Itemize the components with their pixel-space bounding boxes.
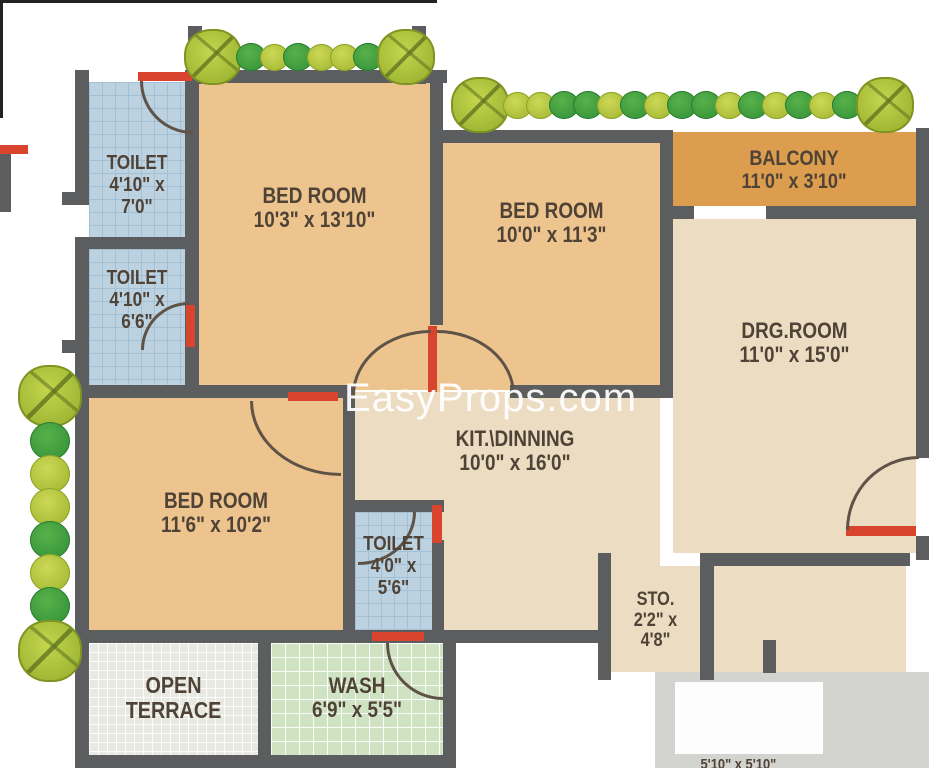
drg-room-label: DRG.ROOM 11'0" x 15'0" xyxy=(690,310,899,376)
bedroom-top-label: BED ROOM 10'3" x 13'10" xyxy=(215,175,414,241)
wall xyxy=(700,553,714,680)
wall xyxy=(660,130,673,392)
room-size: 10'3" x 13'10" xyxy=(254,208,376,232)
room-size: 5'6" xyxy=(378,577,409,599)
open-terrace-label: OPEN TERRACE xyxy=(101,665,246,731)
wall xyxy=(714,553,910,566)
wall xyxy=(343,500,444,512)
wall xyxy=(432,540,444,632)
room-size: 6'9" x 5'5" xyxy=(312,698,402,722)
tree-row-top-right xyxy=(441,74,929,136)
room-size: 4'0" x xyxy=(371,555,417,577)
kit-dinning-label: KIT.\DINNING 10'0" x 16'0" xyxy=(390,418,639,484)
wall xyxy=(258,630,271,768)
room-name: KIT.\DINNING xyxy=(456,427,575,451)
door-marker xyxy=(432,505,442,543)
sto-label: STO. 2'2" x 4'8" xyxy=(617,575,694,667)
tree-row-top-left xyxy=(196,27,428,87)
bedroom-bottom-label: BED ROOM 11'6" x 10'2" xyxy=(107,480,325,546)
large-tree-icon xyxy=(18,365,82,427)
room-name: BED ROOM xyxy=(499,199,603,223)
door-marker xyxy=(138,72,192,81)
corridor-right xyxy=(714,566,906,672)
wall xyxy=(766,206,916,219)
room-size: 10'0" x 11'3" xyxy=(496,223,606,247)
wall xyxy=(75,630,610,643)
bedroom-mid-label: BED ROOM 10'0" x 11'3" xyxy=(458,190,645,256)
room-name: WASH xyxy=(329,674,386,698)
top-border-line xyxy=(0,0,437,3)
floor-plan: TOILET 4'10" x 7'0" TOILET 4'10" x 6'6" … xyxy=(0,0,929,768)
room-size: 10'0" x 16'0" xyxy=(459,451,570,475)
white-box xyxy=(675,682,823,754)
wall xyxy=(62,340,89,353)
room-size: 4'8" xyxy=(641,631,671,652)
large-tree-icon xyxy=(856,77,914,133)
wall xyxy=(916,128,929,458)
large-tree-icon xyxy=(184,29,242,85)
room-size: 5'10" x 5'10" xyxy=(701,756,777,768)
room-size: 7'0" xyxy=(121,196,152,218)
room-size: 2'2" x xyxy=(634,611,677,632)
wall xyxy=(62,192,89,205)
room-name: STO. xyxy=(637,590,675,611)
wall xyxy=(0,154,11,212)
wash-label: WASH 6'9" x 5'5" xyxy=(283,665,431,731)
room-size: 11'0" x 3'10" xyxy=(741,170,846,193)
room-name: TOILET xyxy=(107,267,168,289)
room-name: DRG.ROOM xyxy=(741,319,847,343)
room-name: TERRACE xyxy=(126,698,222,723)
cutoff-dimension-text: 5'10" x 5'10" xyxy=(701,756,830,768)
room-name: TOILET xyxy=(107,152,168,174)
room-size: 6'6" xyxy=(121,311,152,333)
room-size: 4'10" x xyxy=(109,289,164,311)
wall xyxy=(75,755,456,768)
door-marker xyxy=(0,145,28,154)
watermark: EasyProps.com xyxy=(344,376,637,421)
wall xyxy=(763,640,776,673)
wall xyxy=(598,553,611,680)
room-size: 4'10" x xyxy=(109,174,164,196)
large-tree-icon xyxy=(377,29,435,85)
room-name: BED ROOM xyxy=(262,184,366,208)
room-size: 11'0" x 15'0" xyxy=(739,343,849,367)
left-border-line xyxy=(0,0,3,118)
room-name: OPEN xyxy=(145,673,201,698)
wall xyxy=(916,536,929,560)
large-tree-icon xyxy=(18,620,82,682)
toilet-bottom-label: TOILET 4'0" x 5'6" xyxy=(354,518,434,613)
wall xyxy=(89,237,196,249)
toilet-top-label: TOILET 4'10" x 7'0" xyxy=(96,140,179,230)
wall xyxy=(443,630,456,768)
wall xyxy=(75,70,89,200)
room-size: 11'6" x 10'2" xyxy=(161,513,271,537)
balcony-label: BALCONY 11'0" x 3'10" xyxy=(689,140,899,200)
door-marker xyxy=(288,392,338,401)
room-name: BED ROOM xyxy=(164,489,268,513)
room-name: TOILET xyxy=(363,533,424,555)
toilet-mid-label: TOILET 4'10" x 6'6" xyxy=(96,255,179,345)
room-name: BALCONY xyxy=(749,147,838,170)
large-tree-icon xyxy=(451,77,509,133)
tree-column-left xyxy=(14,356,86,696)
wall xyxy=(672,206,694,219)
door-marker xyxy=(372,632,424,641)
